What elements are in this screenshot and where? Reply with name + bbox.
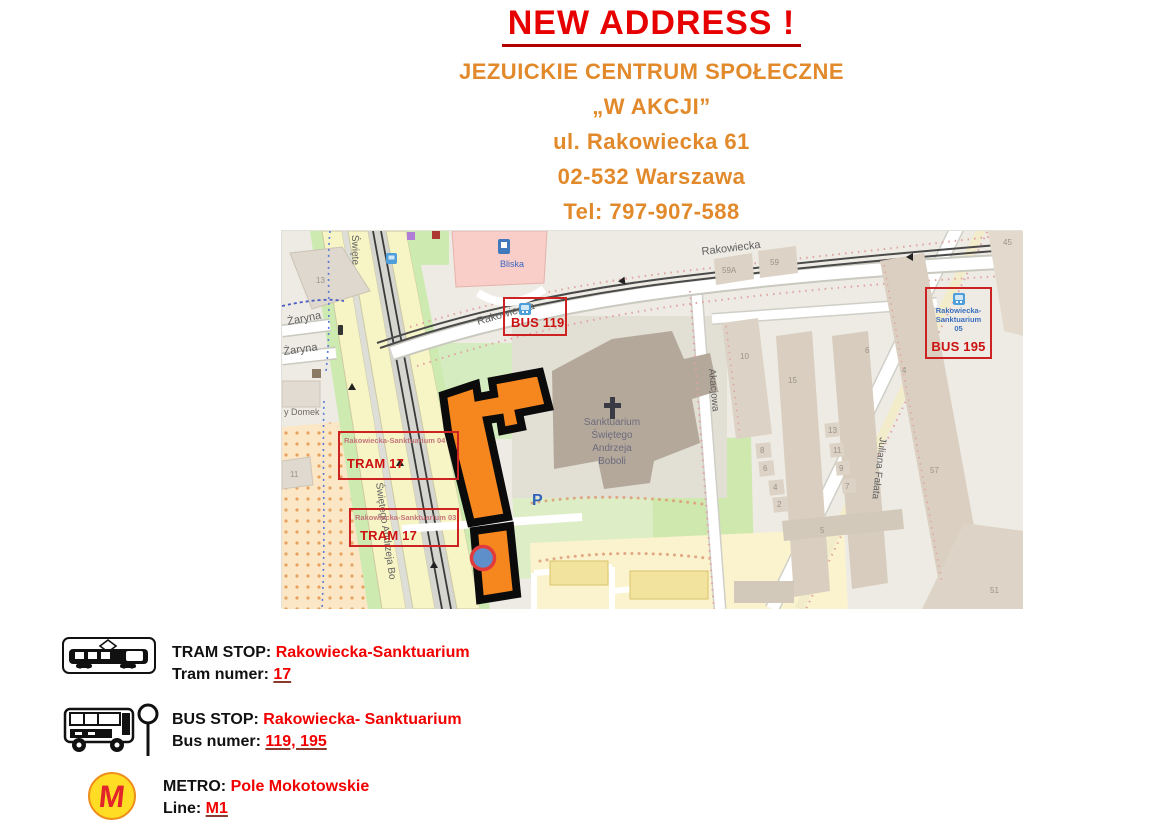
bus-stop-name-line1: Rakowiecka- xyxy=(927,306,990,315)
house-number: 6 xyxy=(763,464,768,473)
bus-stop-name-line2: Sanktuarium xyxy=(927,315,990,324)
bus-stop-value: Rakowiecka- Sanktuarium xyxy=(263,711,461,728)
tram-icon xyxy=(62,637,156,674)
tram-number-label: Tram numer: xyxy=(172,666,269,683)
house-number: 6 xyxy=(865,346,870,355)
annotation-label: TRAM 17 xyxy=(360,528,417,543)
bus-number-label: Bus numer: xyxy=(172,733,261,750)
street-label-swietego-top: Święte xyxy=(349,235,363,266)
poi-label-bliska: Bliska xyxy=(500,259,524,269)
church-label-line3: Andrzeja xyxy=(592,443,632,454)
tram-stop-label: TRAM STOP: xyxy=(172,644,271,661)
tram-stop-name: Rakowiecka-Sanktuarium 04 xyxy=(340,433,457,445)
house-number: 13 xyxy=(316,276,325,285)
church-label-line1: Sanktuarium xyxy=(584,417,640,428)
tram-legend-text: TRAM STOP: Rakowiecka-Sanktuarium Tram n… xyxy=(172,642,470,685)
annotation-label: BUS 195 xyxy=(927,339,990,354)
map-annotation-tram-17-north: Rakowiecka-Sanktuarium 04 TRAM 17 xyxy=(338,431,459,480)
map-image: Rakowiecka Rakowiecka Żaryna Żaryna Świę… xyxy=(281,230,1022,608)
entrance-marker xyxy=(472,547,495,570)
house-number: 10 xyxy=(740,352,749,361)
metro-legend-text: METRO: Pole Mokotowskie Line: M1 xyxy=(163,776,369,819)
house-number: 2 xyxy=(777,500,782,509)
org-name: JEZUICKIE CENTRUM SPOŁECZNE xyxy=(281,59,1022,85)
page-title: NEW ADDRESS ! xyxy=(502,4,802,47)
metro-stop-label: METRO: xyxy=(163,778,226,795)
tram-number-value: 17 xyxy=(273,666,291,683)
house-number: 9 xyxy=(839,464,844,473)
annotation-label: BUS 119 xyxy=(511,315,564,330)
house-number: 11 xyxy=(290,470,299,479)
bus-stop-label: BUS STOP: xyxy=(172,711,259,728)
church-label-line4: Boboli xyxy=(598,456,626,467)
metro-stop-value: Pole Mokotowskie xyxy=(231,778,370,795)
metro-logo-letter: M xyxy=(97,781,126,812)
house-number: 11 xyxy=(833,446,842,455)
house-number: 7 xyxy=(845,482,850,491)
house-number: 13 xyxy=(828,426,837,435)
church-label-line2: Świętego xyxy=(591,428,633,441)
house-number: 59A xyxy=(722,266,737,275)
house-number: 51 xyxy=(990,586,999,595)
house-number: 57 xyxy=(930,466,939,475)
house-number: 4 xyxy=(773,483,778,492)
annotation-label: TRAM 17 xyxy=(347,456,404,471)
map-annotation-bus-119: BUS 119 xyxy=(503,297,567,336)
house-number: 4 xyxy=(902,366,907,375)
map-annotation-tram-17-south: Rakowiecka-Sanktuarium 03 TRAM 17 xyxy=(349,508,459,547)
phone-number: Tel: 797-907-588 xyxy=(281,199,1022,225)
flyer-page: NEW ADDRESS ! JEZUICKIE CENTRUM SPOŁECZN… xyxy=(0,0,1157,836)
street-address: ul. Rakowiecka 61 xyxy=(281,129,1022,155)
tram-stop-name: Rakowiecka-Sanktuarium 03 xyxy=(351,510,457,522)
house-number: 59 xyxy=(770,258,779,267)
house-number: 8 xyxy=(760,446,765,455)
org-subname: „W AKCJI” xyxy=(281,94,1022,120)
parking-symbol: P xyxy=(532,492,543,509)
house-number: 45 xyxy=(1003,238,1012,247)
map-annotation-bus-195: Rakowiecka- Sanktuarium 05 BUS 195 xyxy=(925,287,992,359)
header: NEW ADDRESS ! JEZUICKIE CENTRUM SPOŁECZN… xyxy=(281,0,1022,225)
house-number: 5 xyxy=(820,526,825,535)
bus-icon xyxy=(62,700,164,760)
city-address: 02-532 Warszawa xyxy=(281,164,1022,190)
metro-icon: M xyxy=(88,772,136,820)
bus-stop-name-line3: 05 xyxy=(927,324,990,333)
bus-stop-icon xyxy=(953,293,965,305)
bus-legend-text: BUS STOP: Rakowiecka- Sanktuarium Bus nu… xyxy=(172,709,462,752)
metro-line-value: M1 xyxy=(206,800,228,817)
metro-line-label: Line: xyxy=(163,800,201,817)
map-canvas: Rakowiecka Rakowiecka Żaryna Żaryna Świę… xyxy=(282,231,1023,609)
bus-number-value: 119, 195 xyxy=(265,733,326,750)
poi-label-domek: y Domek xyxy=(284,407,320,417)
house-number: 15 xyxy=(788,376,797,385)
bus-stop-icon xyxy=(519,303,531,315)
tram-stop-value: Rakowiecka-Sanktuarium xyxy=(276,644,470,661)
